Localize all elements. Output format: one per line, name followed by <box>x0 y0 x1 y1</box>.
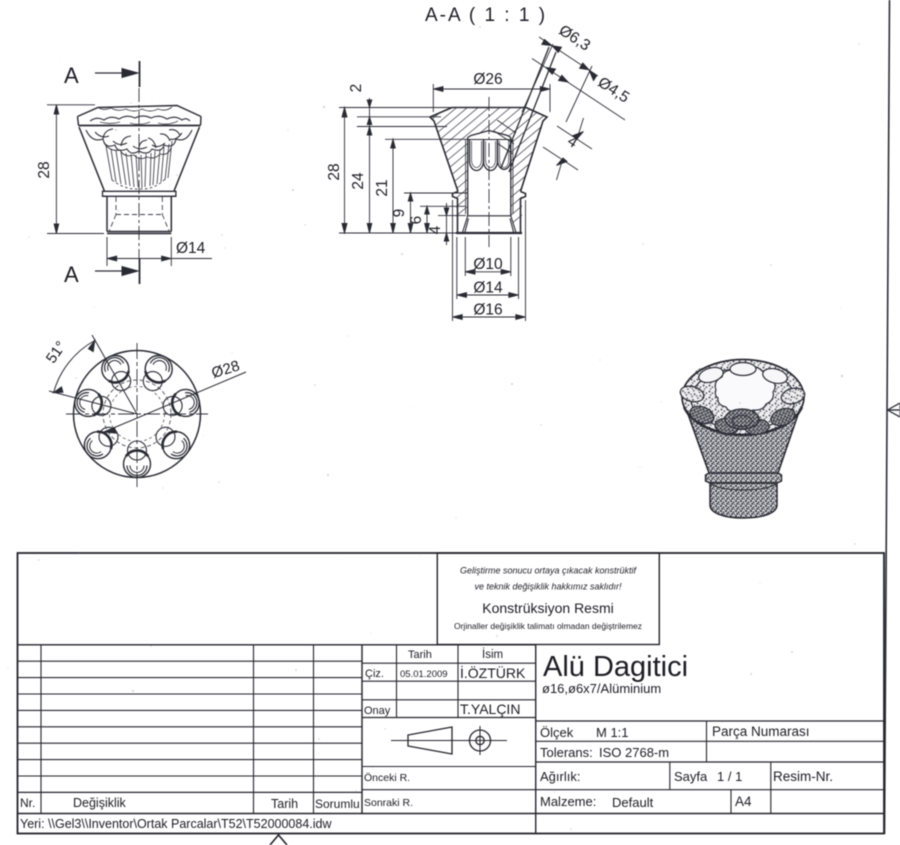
svg-text:A-A ( 1 : 1 ): A-A ( 1 : 1 ) <box>425 5 547 26</box>
svg-text:1 / 1: 1 / 1 <box>717 769 742 784</box>
svg-text:Ø26: Ø26 <box>473 71 502 88</box>
svg-text:Ağırlık:: Ağırlık: <box>540 769 580 784</box>
svg-text:Konstrüksiyon Resmi: Konstrüksiyon Resmi <box>482 600 614 616</box>
svg-text:4: 4 <box>564 133 581 152</box>
svg-text:Tolerans:: Tolerans: <box>540 745 593 760</box>
svg-text:İ.ÖZTÜRK: İ.ÖZTÜRK <box>460 664 526 681</box>
svg-text:Ölçek: Ölçek <box>540 725 574 740</box>
svg-text:A4: A4 <box>735 794 752 809</box>
svg-text:21: 21 <box>374 179 391 196</box>
svg-text:6: 6 <box>408 216 425 225</box>
svg-text:Sorumlu: Sorumlu <box>315 797 360 811</box>
svg-text:Parça Numarası: Parça Numarası <box>712 724 810 739</box>
svg-text:M 1:1: M 1:1 <box>596 725 629 740</box>
svg-text:Resim-Nr.: Resim-Nr. <box>773 769 833 784</box>
svg-text:2: 2 <box>348 84 365 93</box>
svg-text:Onay: Onay <box>364 705 391 717</box>
svg-text:Nr.: Nr. <box>20 796 35 810</box>
svg-text:Ø14: Ø14 <box>473 280 503 297</box>
svg-text:28: 28 <box>326 163 343 180</box>
svg-text:Tarih: Tarih <box>271 797 298 811</box>
svg-text:9: 9 <box>391 209 408 218</box>
svg-text:05.01.2009: 05.01.2009 <box>400 669 448 680</box>
svg-text:Malzeme:: Malzeme: <box>540 794 596 809</box>
svg-text:Sayfa: Sayfa <box>674 769 708 784</box>
svg-text:Ø6,3: Ø6,3 <box>556 22 593 55</box>
svg-text:24: 24 <box>350 172 367 190</box>
svg-text:Ø14: Ø14 <box>176 240 206 257</box>
svg-text:ø16,ø6x7/Alüminium: ø16,ø6x7/Alüminium <box>542 681 661 696</box>
svg-text:A: A <box>64 262 79 287</box>
svg-text:Ø10: Ø10 <box>473 256 503 273</box>
svg-text:Ø28: Ø28 <box>210 357 242 382</box>
svg-text:Çiz.: Çiz. <box>365 668 384 680</box>
svg-text:Alü Dagitici: Alü Dagitici <box>543 651 688 683</box>
svg-text:T.YALÇIN: T.YALÇIN <box>460 701 520 717</box>
svg-text:A: A <box>64 63 79 88</box>
svg-text:Yeri: \\Gel3\\Inventor\Ortak P: Yeri: \\Gel3\\Inventor\Ortak Parcalar\T5… <box>20 817 332 831</box>
svg-text:51°: 51° <box>43 338 70 366</box>
svg-text:Geliştirme sonucu ortaya çıkac: Geliştirme sonucu ortaya çıkacak konstrü… <box>460 566 638 576</box>
svg-text:28: 28 <box>36 161 53 178</box>
svg-text:Orjinaller değişiklik talimatı: Orjinaller değişiklik talimatı olmadan d… <box>454 621 642 631</box>
svg-text:Ø4,5: Ø4,5 <box>595 74 632 107</box>
svg-text:ISO 2768-m: ISO 2768-m <box>599 745 669 760</box>
svg-text:Default: Default <box>612 795 654 810</box>
svg-text:Değişiklik: Değişiklik <box>73 796 127 810</box>
svg-text:4: 4 <box>427 225 444 234</box>
svg-text:ve teknik değişiklik hakkımız: ve teknik değişiklik hakkımız saklıdır! <box>474 582 622 592</box>
svg-text:Önceki R.: Önceki R. <box>364 772 410 784</box>
svg-text:İsim: İsim <box>482 648 503 661</box>
svg-text:Ø16: Ø16 <box>473 302 502 319</box>
svg-text:Sonraki R.: Sonraki R. <box>364 797 413 809</box>
svg-text:Tarih: Tarih <box>408 649 432 661</box>
